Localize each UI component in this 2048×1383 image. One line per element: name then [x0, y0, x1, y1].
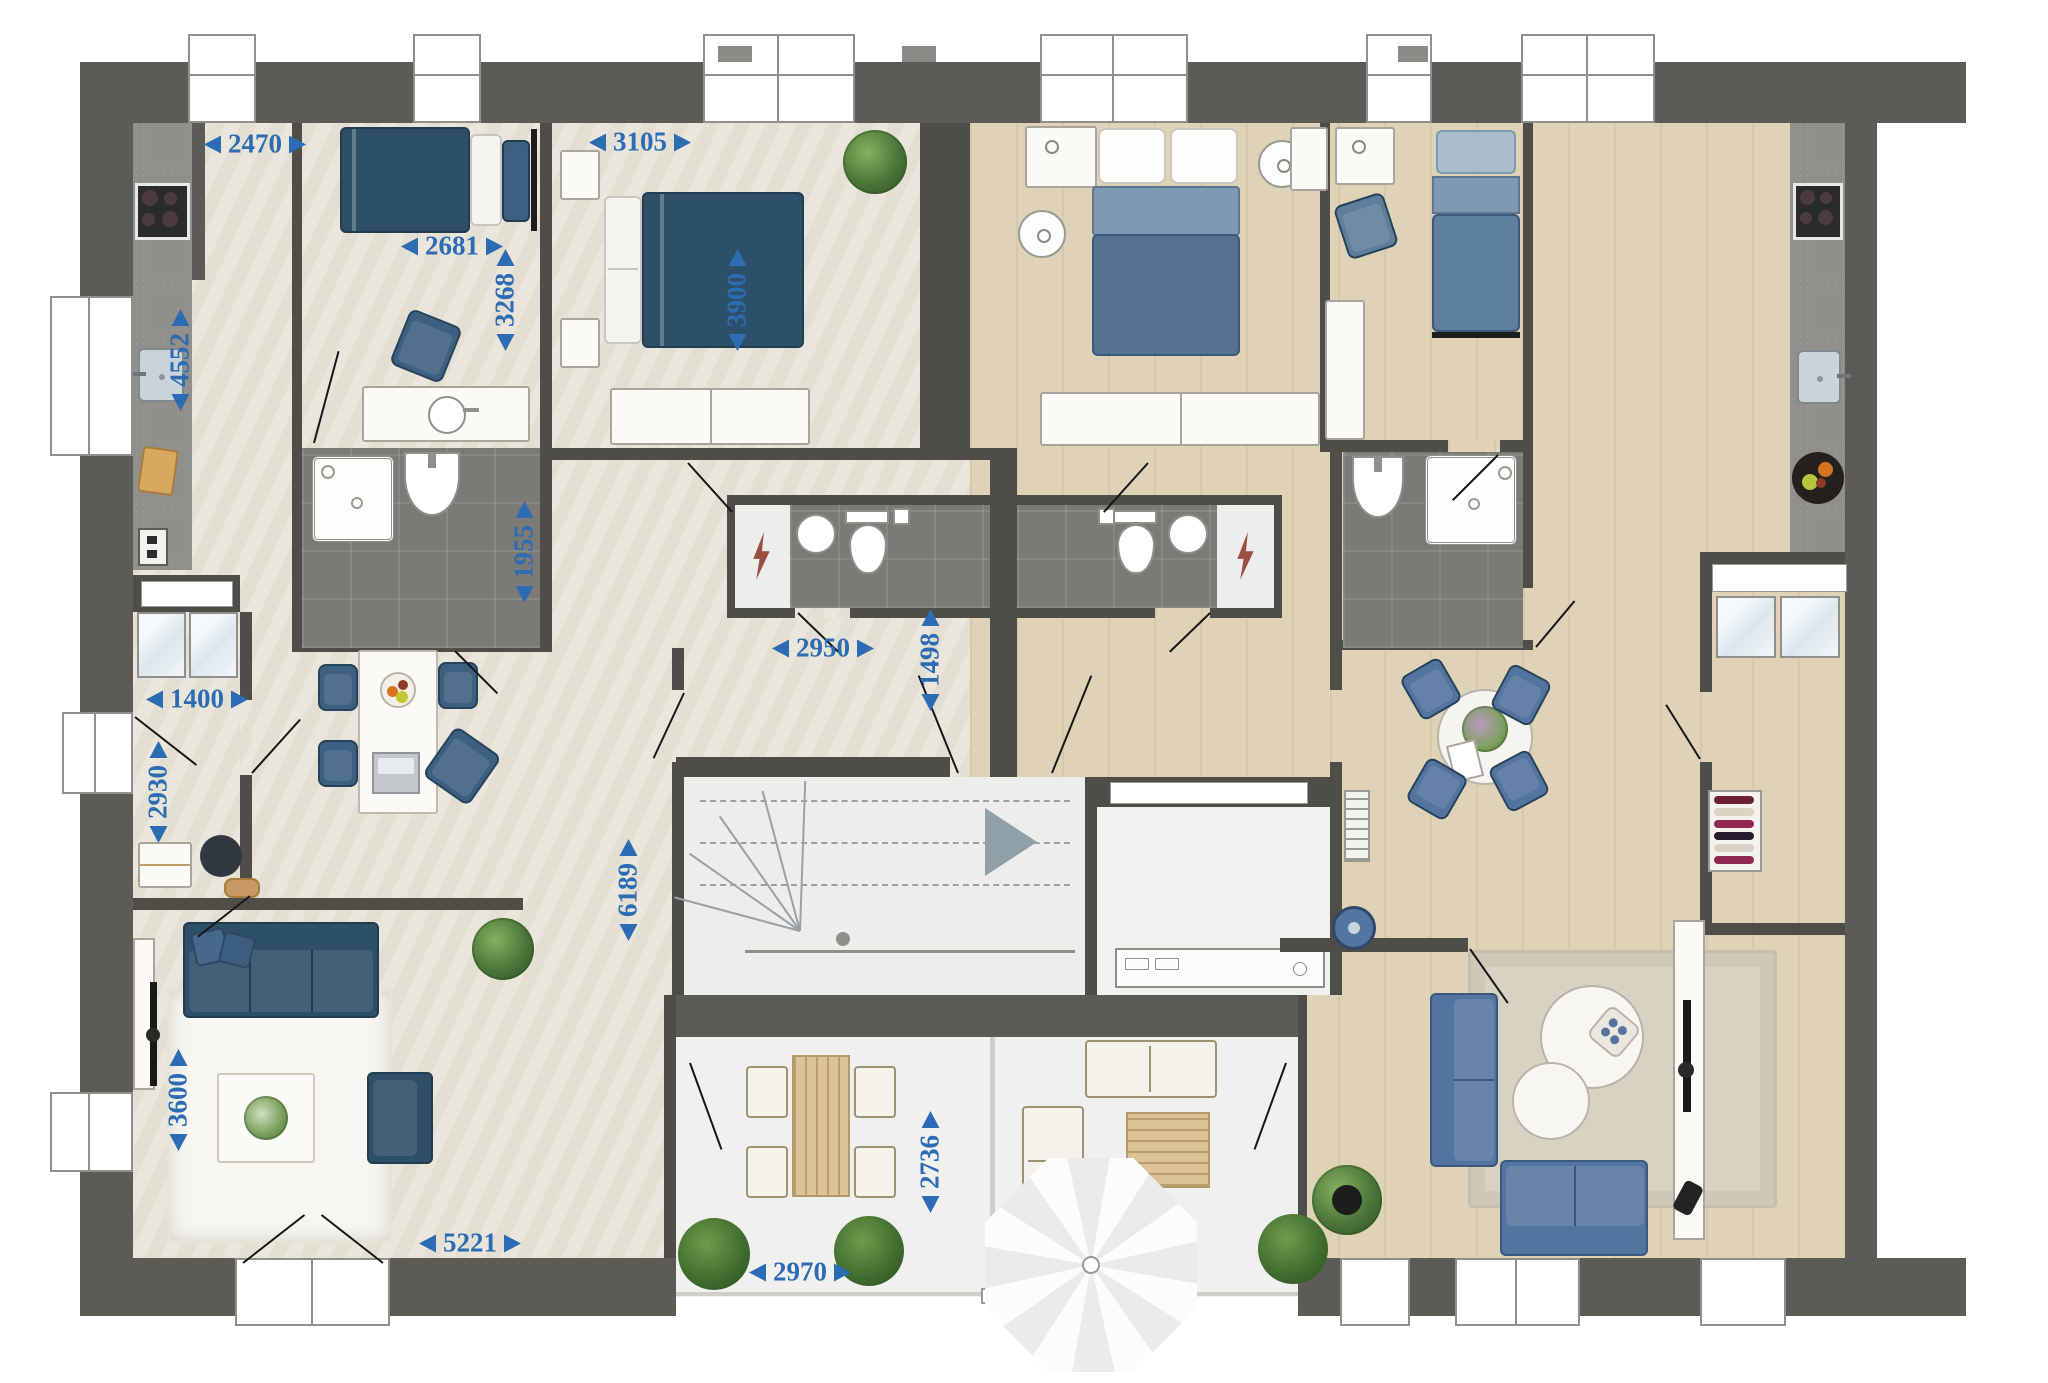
- pantry-window-pane: [1716, 596, 1776, 658]
- shower-head-icon: [1498, 466, 1512, 480]
- bed-pillow: [1170, 128, 1238, 184]
- speaker-icon: [1678, 1062, 1694, 1078]
- dim-arrow-right-icon: [231, 690, 248, 708]
- toilet-paper-icon: [893, 508, 910, 525]
- dimension-bedroom2-depth: 3900: [722, 249, 753, 351]
- wall-closet-left: [727, 505, 735, 608]
- dimension-value: 3105: [613, 127, 667, 158]
- stair-handrail: [745, 950, 1075, 953]
- tap-icon: [428, 452, 436, 468]
- sofa-seam: [1149, 1046, 1151, 1092]
- dimension-value: 3600: [163, 1073, 194, 1127]
- wall-living-left-east: [664, 995, 676, 1258]
- fruit-icon: [1816, 478, 1826, 488]
- window-mullion: [88, 298, 90, 454]
- fruit-icon: [1818, 462, 1833, 477]
- appliance-detail: [1293, 962, 1307, 976]
- window: [1455, 1258, 1580, 1326]
- dim-arrow-right-icon: [515, 501, 533, 518]
- window: [188, 34, 256, 123]
- wine-bottle-icon: [1714, 808, 1754, 816]
- bed-headboard: [531, 129, 537, 231]
- wine-bottle-icon: [1714, 796, 1754, 804]
- door-opening: [1523, 588, 1533, 643]
- fruit-bowl-icon: [1792, 452, 1844, 504]
- dimension-value: 1400: [170, 684, 224, 715]
- wall-closet-right: [1274, 505, 1282, 608]
- tap-icon: [1837, 374, 1851, 378]
- dimension-value: 5221: [443, 1228, 497, 1259]
- dimension-value: 1498: [915, 633, 946, 687]
- drawer-cabinet: [138, 842, 192, 888]
- floor-plan-canvas: 2470 4552 2681 3268 3105 3900 1955 1400 …: [0, 0, 2048, 1383]
- dim-arrow-left-icon: [619, 924, 637, 941]
- dimension-hall-depth: 1498: [915, 609, 946, 711]
- dim-arrow-right-icon: [921, 609, 939, 626]
- dim-arrow-left-icon: [401, 237, 418, 255]
- tech-lintel: [1110, 782, 1308, 804]
- tap-icon: [1374, 456, 1382, 472]
- wall-bedroom1-right: [540, 123, 552, 648]
- fruit-icon: [396, 691, 408, 703]
- dimension-entry-depth: 2930: [143, 741, 174, 843]
- dim-arrow-right-icon: [728, 249, 746, 266]
- burner-icon: [142, 213, 155, 226]
- roof-vent: [1398, 46, 1428, 62]
- window-mullion: [777, 36, 779, 121]
- outside-right-notch: [1877, 123, 1966, 1258]
- shower-head-icon: [321, 465, 335, 479]
- lamp-icon: [1352, 140, 1366, 154]
- burner-icon: [164, 192, 177, 205]
- dimension-terrace-depth: 2736: [915, 1111, 946, 1213]
- dim-arrow-right-icon: [504, 1234, 521, 1252]
- outdoor-table: [792, 1055, 850, 1197]
- dimension-value: 4552: [165, 333, 196, 387]
- sofa-seam: [1574, 1166, 1576, 1226]
- tall-cabinet: [1325, 300, 1365, 440]
- drawer-line: [140, 864, 190, 866]
- bed-sheet-fold: [1092, 186, 1240, 236]
- dimension-value: 2970: [773, 1257, 827, 1288]
- bed-duvet: [1432, 214, 1520, 332]
- dim-arrow-left-icon: [496, 334, 514, 351]
- bedside-lamp-icon: [1018, 210, 1066, 258]
- wc-sink-icon: [796, 514, 836, 554]
- stair-post: [836, 932, 850, 946]
- bed-duvet: [340, 127, 470, 233]
- dim-arrow-left-icon: [204, 135, 221, 153]
- bed-sheet-fold: [1432, 176, 1520, 214]
- outdoor-chair: [854, 1146, 896, 1198]
- window-mullion: [88, 1094, 90, 1170]
- wall-right: [1845, 123, 1877, 1258]
- dim-arrow-left-icon: [772, 639, 789, 657]
- wall-wc-top: [727, 495, 1282, 505]
- roof-vent: [718, 46, 752, 62]
- dining-chair: [318, 740, 358, 787]
- armchair: [367, 1072, 433, 1164]
- dimension-value: 2470: [228, 129, 282, 160]
- dim-arrow-left-icon: [169, 1134, 187, 1151]
- nightstand: [560, 150, 600, 200]
- sink-icon: [1797, 350, 1841, 404]
- tv-icon: [1683, 1000, 1691, 1112]
- dimension-value: 3900: [722, 273, 753, 327]
- dimension-entry-width: 1400: [146, 684, 248, 715]
- wine-bottle-icon: [1714, 832, 1754, 840]
- pouf: [200, 835, 242, 877]
- dim-arrow-right-icon: [169, 1049, 187, 1066]
- pantry-window-pane: [1780, 596, 1840, 658]
- nightstand: [560, 318, 600, 368]
- drain-icon: [351, 497, 363, 509]
- pillow-divider: [608, 268, 638, 270]
- dimension-kitchen-width: 2470: [204, 129, 306, 160]
- flower-bouquet-icon: [244, 1096, 288, 1140]
- armchair-seat: [373, 1080, 417, 1156]
- window: [413, 34, 481, 123]
- dim-arrow-right-icon: [149, 741, 167, 758]
- stair-dashed-line: [700, 884, 1070, 886]
- outdoor-sofa: [1085, 1040, 1217, 1098]
- master-desk: [1025, 126, 1097, 188]
- bed-pillow: [1098, 128, 1166, 184]
- window: [1521, 34, 1655, 123]
- sofa-seam: [1454, 1079, 1494, 1081]
- wardrobe: [1040, 392, 1320, 446]
- window-mullion: [1112, 36, 1114, 121]
- robot-vacuum-icon: [1332, 906, 1376, 950]
- roof-vent: [902, 46, 936, 62]
- window: [50, 296, 133, 456]
- dim-arrow-left-icon: [728, 334, 746, 351]
- window: [1040, 34, 1188, 123]
- dice-dot: [1616, 1024, 1629, 1037]
- sofa: [1430, 993, 1498, 1167]
- dim-arrow-right-icon: [619, 839, 637, 856]
- dim-arrow-left-icon: [149, 826, 167, 843]
- burner-icon: [1820, 192, 1832, 204]
- dim-arrow-right-icon: [921, 1111, 939, 1128]
- dimension-corridor-length: 6189: [613, 839, 644, 941]
- window-mullion: [1586, 36, 1588, 121]
- door-frame-line: [94, 714, 96, 792]
- appliance-detail: [1125, 958, 1149, 970]
- duvet-fold: [660, 194, 664, 346]
- dim-arrow-left-icon: [419, 1234, 436, 1252]
- dim-arrow-left-icon: [921, 1196, 939, 1213]
- window: [1340, 1258, 1410, 1326]
- shower-icon: [312, 456, 394, 542]
- bed-pillow: [1436, 130, 1516, 174]
- burner-icon: [1818, 210, 1833, 225]
- dimension-value: 2681: [425, 231, 479, 262]
- bed-pillow-blue: [502, 140, 530, 222]
- dimension-value: 6189: [613, 863, 644, 917]
- cutting-board-icon: [137, 446, 179, 497]
- dim-arrow-right-icon: [171, 309, 189, 326]
- vanity-sink-icon: [428, 396, 466, 434]
- bush-icon: [678, 1218, 750, 1290]
- wall-living-left-top: [133, 898, 523, 910]
- dimension-bedroom1-width: 2681: [401, 231, 503, 262]
- dim-arrow-left-icon: [515, 586, 533, 603]
- plant-icon: [843, 130, 907, 194]
- umbrella-pole: [1082, 1256, 1100, 1274]
- desk: [1335, 127, 1395, 185]
- wall-pantry-top: [1700, 552, 1845, 564]
- entry-window-pane: [137, 612, 186, 678]
- dimension-living-width: 5221: [419, 1228, 521, 1259]
- door-frame-line: [311, 1260, 313, 1324]
- duvet-fold: [352, 129, 356, 231]
- appliance-detail: [1155, 958, 1179, 970]
- dining-chair: [318, 664, 358, 711]
- outdoor-chair: [746, 1146, 788, 1198]
- laptop-screen: [378, 758, 414, 774]
- fruit-icon: [398, 680, 408, 690]
- radiator-icon: [1344, 790, 1370, 862]
- dice-dot: [1608, 1033, 1621, 1046]
- master-vanity: [1290, 127, 1328, 191]
- drain-icon: [1817, 376, 1823, 382]
- stove-icon: [1793, 183, 1843, 240]
- outdoor-chair: [746, 1066, 788, 1118]
- wall-party-jog: [970, 448, 1017, 460]
- tap-icon: [463, 408, 479, 412]
- window-mullion: [1042, 74, 1186, 76]
- dimension-terrace-width: 2970: [749, 1257, 851, 1288]
- burner-icon: [142, 190, 158, 206]
- fruit-bowl-icon: [380, 672, 416, 708]
- bed-duvet: [1092, 234, 1240, 356]
- dim-arrow-left-icon: [146, 690, 163, 708]
- vacuum-button: [1348, 922, 1360, 934]
- stool: [224, 878, 260, 898]
- dimension-bedroom1-depth: 3268: [490, 249, 521, 351]
- dim-arrow-right-icon: [496, 249, 514, 266]
- dimension-value: 2950: [796, 633, 850, 664]
- burner-icon: [1800, 190, 1815, 205]
- wall-terrace-top: [676, 995, 1298, 1037]
- door-opening: [1700, 692, 1712, 762]
- dimension-value: 2736: [915, 1135, 946, 1189]
- toilet-tank: [845, 510, 889, 524]
- wine-bottle-icon: [1714, 820, 1754, 828]
- wall-stair-top: [676, 757, 950, 777]
- wall-party-bedrooms: [920, 123, 970, 460]
- wine-bottle-icon: [1714, 856, 1754, 864]
- dimension-living-depth: 3600: [163, 1049, 194, 1151]
- dimension-kitchen-length: 4552: [165, 309, 196, 411]
- wall-top: [80, 62, 1966, 123]
- window-mullion: [415, 74, 479, 76]
- wall-stair-tech-divider: [1085, 777, 1097, 995]
- wine-bottle-icon: [1714, 844, 1754, 852]
- toilet-tank: [1113, 510, 1157, 524]
- window-mullion: [190, 74, 254, 76]
- window-mullion: [1515, 1260, 1517, 1324]
- wardrobe-divider: [710, 390, 712, 443]
- dim-arrow-left-icon: [171, 394, 189, 411]
- drain-icon: [1468, 498, 1480, 510]
- bed-pillow: [470, 134, 502, 226]
- door-opening: [1155, 608, 1210, 618]
- window-mullion: [705, 74, 853, 76]
- wall-bedroom3-bottom: [1330, 440, 1533, 452]
- coffee-machine-icon: [138, 528, 168, 566]
- wall-pantry-bottom: [1700, 923, 1845, 935]
- stair-direction-arrow-icon: [985, 808, 1037, 876]
- burner-icon: [162, 211, 178, 227]
- window: [1700, 1258, 1786, 1326]
- wc-sink-icon: [1168, 514, 1208, 554]
- tap-icon: [132, 372, 146, 376]
- heating-unit-icon: [1115, 948, 1325, 988]
- sofa: [183, 922, 379, 1018]
- sofa-seam: [311, 950, 313, 1012]
- window-mullion: [1523, 74, 1653, 76]
- dimension-hall-width: 2950: [772, 633, 874, 664]
- window: [50, 1092, 133, 1172]
- entry-window-pane: [189, 612, 238, 678]
- dim-arrow-left-icon: [749, 1263, 766, 1281]
- wall-bedroom1-left: [292, 123, 302, 648]
- dim-arrow-right-icon: [857, 639, 874, 657]
- dim-arrow-left-icon: [589, 133, 606, 151]
- wall-living-right-top: [1280, 938, 1468, 952]
- wall-bedroom3-right: [1523, 123, 1533, 452]
- dim-arrow-right-icon: [289, 135, 306, 153]
- window-mullion: [1368, 74, 1430, 76]
- plant-icon: [472, 918, 534, 980]
- plant-pot: [1332, 1185, 1362, 1215]
- dimension-value: 3268: [490, 273, 521, 327]
- appliance-detail: [147, 536, 157, 544]
- bed-footboard: [1432, 332, 1520, 338]
- dimension-value: 2930: [143, 765, 174, 819]
- stair-dashed-line: [700, 800, 1070, 802]
- wall-central: [990, 505, 1017, 777]
- coffee-table-round-small: [1512, 1062, 1590, 1140]
- burner-icon: [1800, 212, 1812, 224]
- outdoor-chair: [854, 1066, 896, 1118]
- pantry-lintel-window: [1712, 564, 1847, 592]
- appliance-detail: [147, 550, 157, 558]
- speaker-icon: [146, 1028, 160, 1042]
- wine-rack-icon: [1708, 790, 1762, 872]
- french-doors: [235, 1258, 390, 1326]
- bush-icon: [1258, 1214, 1328, 1284]
- loveseat: [1500, 1160, 1648, 1256]
- stove-icon: [135, 183, 190, 240]
- entry-lintel: [141, 581, 233, 607]
- wardrobe-divider: [1180, 394, 1182, 444]
- shower-icon: [1425, 455, 1517, 545]
- lamp-icon: [1045, 140, 1059, 154]
- door-opening: [1330, 690, 1342, 762]
- wardrobe: [610, 388, 810, 445]
- dimension-bathroom1-depth: 1955: [509, 501, 540, 603]
- dim-arrow-right-icon: [674, 133, 691, 151]
- bed-pillows: [604, 196, 642, 344]
- door-opening: [1448, 440, 1500, 452]
- laptop-icon: [372, 752, 420, 794]
- dimension-bedroom2-width: 3105: [589, 127, 691, 158]
- dim-arrow-left-icon: [921, 694, 939, 711]
- dimension-value: 1955: [509, 525, 540, 579]
- dim-arrow-right-icon: [834, 1263, 851, 1281]
- front-door: [62, 712, 133, 794]
